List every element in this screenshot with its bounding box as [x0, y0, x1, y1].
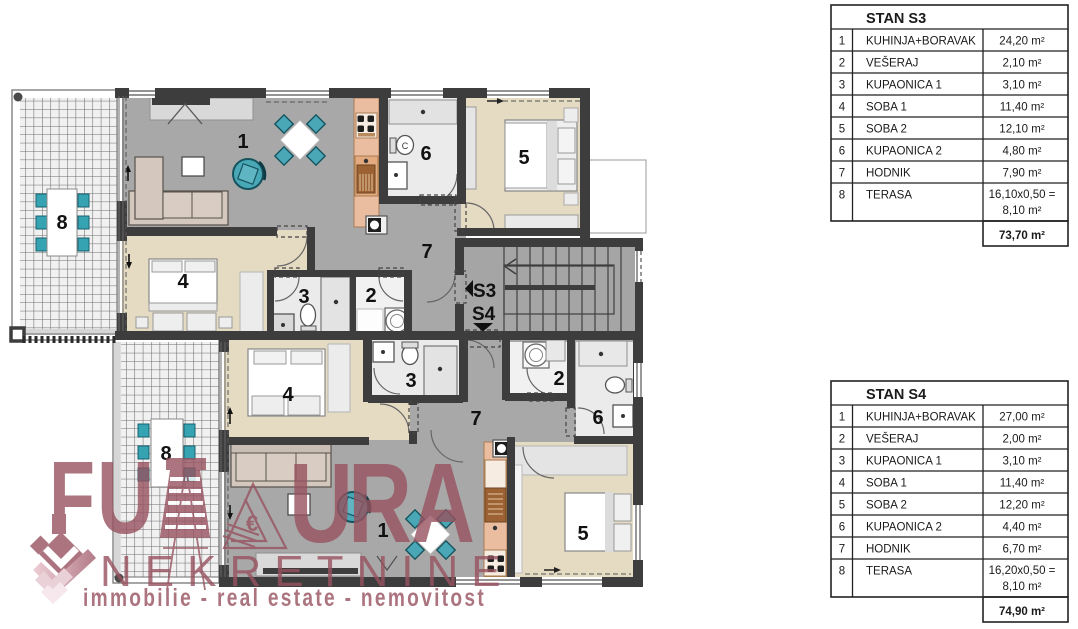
svg-text:4: 4	[839, 478, 846, 490]
svg-text:8,10 m²: 8,10 m²	[1003, 205, 1042, 217]
svg-text:KUPAONICA 1: KUPAONICA 1	[866, 80, 942, 92]
svg-text:5: 5	[577, 523, 588, 545]
svg-text:4,40 m²: 4,40 m²	[1003, 522, 1042, 534]
svg-text:8: 8	[56, 212, 67, 234]
svg-text:3: 3	[839, 456, 845, 468]
svg-text:4: 4	[282, 384, 294, 406]
svg-text:3: 3	[839, 80, 845, 92]
svg-text:8: 8	[839, 190, 845, 202]
svg-text:16,20x0,50 =: 16,20x0,50 =	[989, 565, 1056, 577]
svg-text:7,90 m²: 7,90 m²	[1003, 168, 1042, 180]
svg-text:SOBA 2: SOBA 2	[866, 124, 907, 136]
svg-text:6: 6	[839, 522, 845, 534]
svg-text:4: 4	[177, 271, 189, 293]
svg-text:3: 3	[298, 286, 309, 308]
svg-text:STAN S3: STAN S3	[866, 11, 926, 27]
svg-text:7: 7	[421, 241, 432, 263]
svg-text:4,80 m²: 4,80 m²	[1003, 146, 1042, 158]
svg-text:KUHINJA+BORAVAK: KUHINJA+BORAVAK	[866, 36, 976, 48]
svg-text:11,40 m²: 11,40 m²	[1000, 478, 1045, 490]
svg-text:HODNIK: HODNIK	[866, 544, 911, 556]
svg-text:2: 2	[365, 285, 376, 307]
svg-text:S3: S3	[473, 281, 496, 302]
svg-text:1: 1	[237, 131, 248, 153]
svg-text:2: 2	[553, 368, 564, 390]
svg-text:KUHINJA+BORAVAK: KUHINJA+BORAVAK	[866, 412, 976, 424]
svg-text:VEŠERAJ: VEŠERAJ	[866, 433, 918, 446]
svg-text:7: 7	[839, 544, 845, 556]
svg-text:C: C	[402, 141, 409, 151]
svg-text:€: €	[246, 511, 258, 536]
svg-text:6: 6	[420, 143, 431, 165]
svg-text:SOBA 2: SOBA 2	[866, 500, 907, 512]
svg-text:24,20 m²: 24,20 m²	[999, 36, 1045, 48]
svg-text:TERASA: TERASA	[866, 190, 912, 202]
svg-text:immobilie - real estate - nemo: immobilie - real estate - nemovitost	[83, 584, 486, 612]
svg-text:4: 4	[839, 102, 846, 114]
svg-text:74,90 m²: 74,90 m²	[999, 606, 1045, 618]
svg-text:3,10 m²: 3,10 m²	[1003, 80, 1042, 92]
svg-text:U: U	[97, 440, 154, 555]
svg-text:2,10 m²: 2,10 m²	[1003, 58, 1042, 70]
svg-text:7: 7	[470, 408, 481, 430]
svg-text:12,20 m²: 12,20 m²	[999, 500, 1045, 512]
svg-text:27,00 m²: 27,00 m²	[999, 412, 1045, 424]
svg-text:5: 5	[839, 500, 845, 512]
svg-text:11,40 m²: 11,40 m²	[1000, 102, 1045, 114]
svg-text:2: 2	[839, 434, 845, 446]
svg-text:TERASA: TERASA	[866, 566, 912, 578]
svg-text:S4: S4	[472, 304, 496, 325]
svg-text:6: 6	[839, 146, 845, 158]
svg-text:KUPAONICA 1: KUPAONICA 1	[866, 456, 942, 468]
svg-text:8,10 m²: 8,10 m²	[1003, 581, 1042, 593]
svg-text:12,10 m²: 12,10 m²	[999, 124, 1045, 136]
svg-text:KUPAONICA 2: KUPAONICA 2	[866, 146, 942, 158]
svg-text:3,10 m²: 3,10 m²	[1003, 456, 1042, 468]
svg-text:16,10x0,50 =: 16,10x0,50 =	[989, 189, 1056, 201]
svg-text:HODNIK: HODNIK	[866, 168, 911, 180]
svg-text:VEŠERAJ: VEŠERAJ	[866, 57, 918, 70]
svg-text:2: 2	[839, 58, 845, 70]
svg-text:STAN S4: STAN S4	[866, 387, 926, 403]
svg-text:2,00 m²: 2,00 m²	[1003, 434, 1042, 446]
svg-text:73,70 m²: 73,70 m²	[999, 230, 1045, 242]
svg-text:SOBA 1: SOBA 1	[866, 478, 907, 490]
svg-text:6,70 m²: 6,70 m²	[1003, 544, 1042, 556]
svg-text:5: 5	[518, 147, 529, 169]
svg-text:7: 7	[839, 168, 845, 180]
svg-text:5: 5	[839, 124, 845, 136]
svg-text:3: 3	[405, 370, 416, 392]
svg-text:6: 6	[592, 407, 603, 429]
svg-text:SOBA 1: SOBA 1	[866, 102, 907, 114]
svg-text:1: 1	[839, 412, 845, 424]
svg-text:8: 8	[839, 566, 845, 578]
svg-text:KUPAONICA 2: KUPAONICA 2	[866, 522, 942, 534]
svg-text:1: 1	[839, 36, 845, 48]
